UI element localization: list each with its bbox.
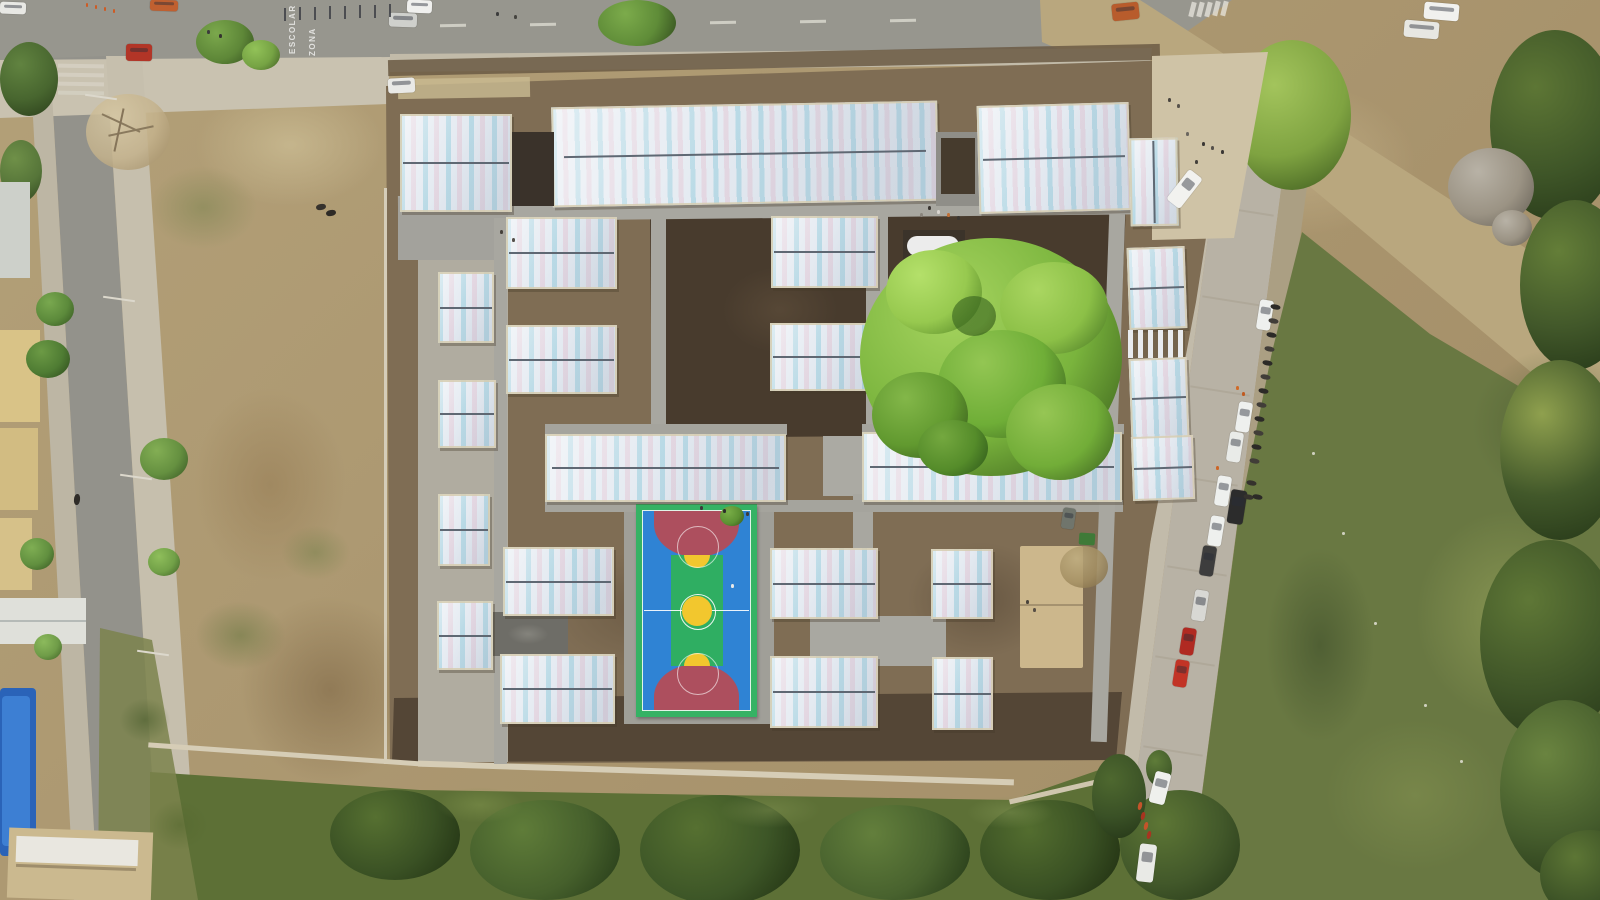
pool-water: [2, 696, 30, 846]
building-left-roof-line: [0, 620, 86, 622]
person: [1211, 146, 1214, 150]
windshield: [1230, 438, 1241, 447]
grass-dark-left: [110, 690, 180, 750]
car-white: [388, 77, 416, 93]
roof-ridge: [934, 693, 991, 695]
roof-ridge: [564, 150, 927, 158]
road-marking-text: ESCOLAR: [288, 4, 297, 54]
debris-white: [1374, 622, 1377, 625]
fence-post: [344, 6, 346, 19]
car-white: [1403, 20, 1439, 40]
person: [957, 216, 960, 220]
person: [1202, 142, 1205, 146]
worker-orange: [1242, 392, 1245, 396]
roof-ridge: [403, 162, 508, 164]
building-top-left: [400, 114, 512, 212]
lane-dash: [440, 24, 466, 27]
pavilion-southeast: [932, 657, 993, 730]
shrub-light-top: [700, 785, 840, 835]
building-left-yellow: [0, 428, 38, 510]
car-white: [407, 0, 432, 13]
pavilion-west: [438, 494, 490, 566]
person: [1026, 600, 1029, 604]
shrub: [820, 805, 970, 900]
tree-left-sidewalk: [36, 292, 74, 326]
person: [920, 213, 923, 217]
person: [731, 584, 734, 588]
debris-white: [1424, 704, 1427, 707]
dry-shrub-campus: [1060, 546, 1108, 588]
tree-field-left: [140, 438, 188, 480]
tree-field-left: [148, 548, 180, 576]
roof-ridge: [1132, 396, 1187, 400]
roof-ridge: [503, 688, 611, 690]
roof-ridge: [933, 583, 991, 585]
fence-post: [389, 4, 391, 17]
windshield: [411, 3, 429, 7]
green-right-dark: [1245, 510, 1395, 780]
road-marking-text: ZONA: [308, 27, 317, 56]
pavilion-west: [438, 380, 496, 448]
terrace-pit: [941, 138, 975, 194]
windshield: [1141, 852, 1154, 863]
debris-white: [1460, 760, 1463, 763]
cone-orange: [113, 9, 115, 13]
fence-post: [359, 5, 361, 18]
windshield: [1211, 522, 1222, 531]
pavilion-east: [1131, 435, 1195, 501]
windshield: [1183, 633, 1194, 641]
windshield: [392, 81, 411, 86]
person: [746, 512, 749, 516]
shrub-road-flank: [1092, 754, 1146, 838]
windshield: [1239, 408, 1250, 417]
roof-ridge: [552, 467, 779, 469]
windshield: [154, 2, 174, 6]
person: [1033, 608, 1036, 612]
person: [219, 34, 222, 38]
lane-dash: [710, 21, 736, 24]
tree-top-left-corner: [0, 42, 58, 116]
pavilion-center: [770, 656, 878, 728]
building-mid-long-west: [545, 434, 786, 502]
pavilion-east: [1127, 246, 1188, 330]
lane-dash: [800, 20, 826, 23]
sand-court-net-line: [1020, 604, 1083, 606]
roof-ridge: [773, 583, 875, 585]
building-top-long: [551, 101, 939, 208]
person: [207, 30, 210, 34]
debris-white: [1312, 452, 1315, 455]
windshield: [1064, 512, 1074, 519]
truck-orange: [1111, 2, 1140, 22]
pavilion-west: [437, 601, 493, 670]
windshield: [1232, 497, 1244, 507]
field-grass-c: [268, 515, 363, 590]
building-left-white: [0, 182, 30, 278]
person: [1195, 160, 1198, 164]
windshield: [1409, 24, 1434, 31]
court-part: [682, 596, 712, 626]
lane-dash: [530, 23, 556, 26]
building-bottom-left-roof: [16, 836, 139, 866]
roof-ridge: [1134, 466, 1192, 470]
roof-ridge: [1152, 141, 1155, 224]
crosswalk-bar: [58, 64, 104, 69]
pavilion-mid: [506, 217, 617, 289]
pavilion-mid: [506, 325, 617, 394]
building-top-right: [977, 102, 1132, 214]
pavilion-southeast: [931, 549, 993, 619]
shrub-light-top: [420, 780, 540, 830]
person: [947, 213, 950, 217]
court-part: [677, 526, 719, 568]
windshield: [1429, 6, 1454, 13]
pavilion-east: [1129, 357, 1190, 439]
person: [1221, 150, 1224, 154]
windshield: [1116, 6, 1135, 12]
worker-orange: [1216, 466, 1219, 470]
truck-red: [126, 44, 152, 61]
big-tree-gap: [952, 296, 996, 336]
person: [700, 506, 703, 510]
debris-white: [1342, 532, 1345, 535]
truck-orange: [150, 0, 178, 11]
aerial-photo-school-campus: ESCOLAR ZONA: [0, 0, 1600, 900]
plaza-west-markings: [500, 620, 556, 648]
sports-court: [636, 504, 757, 717]
building-top-courtyard: [512, 132, 554, 206]
person: [496, 12, 499, 16]
car-white: [1423, 2, 1459, 22]
shrub-light-top: [950, 790, 1070, 835]
pavilion-west: [438, 272, 494, 343]
windshield: [1203, 552, 1214, 561]
person: [1168, 98, 1171, 102]
person: [937, 210, 940, 214]
windshield: [1155, 778, 1168, 789]
campus-wall-left: [384, 188, 387, 764]
person: [723, 509, 726, 513]
windshield: [130, 48, 148, 53]
car-white: [0, 2, 26, 15]
lane-dash: [890, 19, 916, 22]
person: [500, 230, 503, 234]
roof-ridge: [440, 413, 495, 415]
worker-orange: [1236, 386, 1239, 390]
roof-ridge: [509, 252, 613, 254]
roof-ridge: [439, 635, 492, 637]
tree-left-sidewalk: [34, 634, 62, 660]
roof-ridge: [440, 529, 489, 531]
roof-ridge: [506, 581, 610, 583]
car-silver: [389, 13, 417, 28]
rock-small: [1492, 210, 1532, 246]
pavilion-mid: [503, 547, 614, 616]
cone-orange: [86, 3, 88, 7]
crosswalk-bar: [58, 73, 104, 78]
crosswalk-bar: [58, 82, 104, 87]
windshield: [1176, 665, 1187, 673]
windshield: [1180, 177, 1195, 192]
windshield: [1218, 482, 1229, 491]
big-tree-lobe: [918, 420, 988, 476]
pavilion-mid: [500, 654, 615, 724]
fence-post: [374, 5, 376, 18]
roof-ridge: [774, 251, 875, 253]
roof-ridge: [509, 359, 613, 361]
tree-top-center: [598, 0, 676, 46]
windshield: [1195, 596, 1206, 605]
person: [514, 15, 517, 19]
field-grass-b: [178, 588, 303, 683]
building-entry-canopy: [1129, 138, 1179, 227]
person: [1186, 132, 1189, 136]
road-marking-zona-escolar: ESCOLAR ZONA: [280, 0, 332, 58]
tree-top-street: [242, 40, 280, 70]
person: [512, 238, 515, 242]
roof-ridge: [773, 691, 875, 693]
roof-ridge: [440, 307, 493, 309]
court-part: [677, 653, 719, 695]
cone-orange: [104, 7, 106, 11]
windshield: [1260, 306, 1271, 315]
person: [928, 206, 931, 210]
tree-left-sidewalk: [20, 538, 54, 570]
pergola-east: [1128, 330, 1184, 358]
roof-ridge: [983, 155, 1126, 161]
tree-left-sidewalk: [26, 340, 70, 378]
cone-orange: [95, 5, 97, 9]
windshield: [393, 16, 413, 20]
big-tree-lobe: [1006, 384, 1114, 480]
soil-mound-pale: [398, 77, 530, 99]
roof-ridge: [1130, 286, 1185, 290]
windshield: [4, 4, 22, 8]
pavilion-center: [771, 216, 878, 288]
person: [1177, 104, 1180, 108]
pavilion-center: [770, 548, 878, 619]
tractor-green: [1079, 532, 1096, 545]
